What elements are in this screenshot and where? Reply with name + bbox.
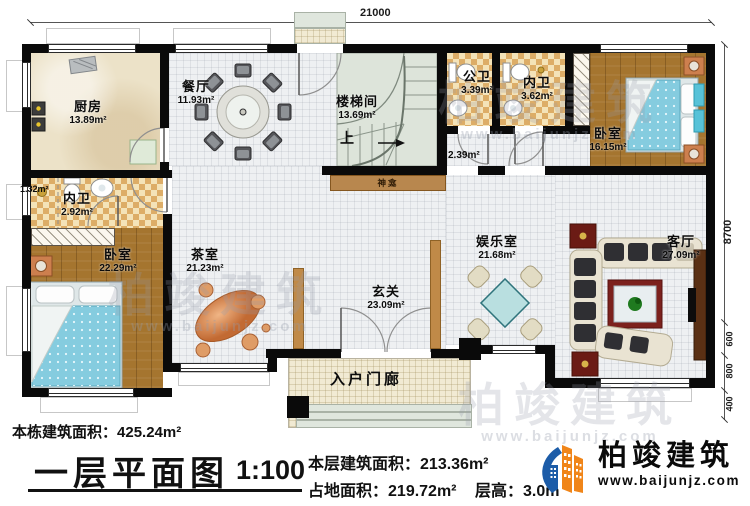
wall — [322, 166, 446, 175]
entry-steps-top-landing — [294, 28, 346, 44]
room-label-porch: 入户门廊 — [330, 368, 402, 389]
wall — [266, 349, 341, 358]
porch-step — [296, 420, 472, 428]
dimension-top-value: 21000 — [360, 7, 391, 19]
foyer-screen-left — [293, 268, 304, 349]
wall — [706, 44, 715, 388]
wall — [543, 126, 590, 134]
doors — [88, 53, 545, 352]
room-label-stairwell: 楼梯间13.69m² — [336, 95, 378, 121]
window — [492, 345, 536, 354]
dimension-seg-400: 400 — [725, 396, 735, 411]
title-underline — [28, 489, 302, 492]
area-label-shower: 1.32m² — [20, 184, 49, 194]
building-total-area: 本栋建筑面积：425.24m² — [12, 421, 181, 442]
wall — [492, 44, 500, 134]
room-label-kitchen: 厨房13.89m² — [69, 100, 106, 126]
room-label-bedroom-right: 卧室16.15m² — [589, 127, 626, 153]
dimension-seg-800: 800 — [725, 363, 735, 378]
room-label-ensuite-top: 内卫3.62m² — [521, 76, 553, 102]
porch-column — [459, 338, 481, 360]
wall — [160, 44, 169, 128]
ground-area-line: 占地面积：219.72m² 层高：3.0m — [308, 477, 559, 501]
wall — [490, 126, 515, 134]
wall — [545, 166, 706, 175]
drawing-scale: 1:100 — [236, 455, 305, 486]
brand-name: 柏竣建筑 — [598, 441, 740, 473]
room-label-bedroom-left: 卧室22.29m² — [99, 248, 136, 274]
wall — [437, 44, 447, 175]
door-gap — [297, 44, 343, 53]
room-label-rec-room: 娱乐室21.68m² — [476, 235, 518, 261]
bed-left — [30, 256, 122, 388]
tea-room-furniture — [187, 280, 270, 357]
wall — [22, 170, 172, 178]
window — [48, 388, 134, 397]
brand-logo-icon — [536, 441, 590, 499]
window — [22, 288, 31, 352]
floorplan-page: { "plan": { "dims": { "top": "21000", "r… — [0, 0, 750, 506]
porch-step — [296, 412, 472, 420]
room-label-ensuite-left: 内卫2.92m² — [61, 192, 93, 218]
foyer-screen-right — [430, 240, 441, 349]
wall — [565, 44, 573, 134]
window — [22, 62, 31, 108]
room-label-living-room: 客厅27.09m² — [662, 235, 699, 261]
shrine-shelf: 神龛 — [330, 175, 446, 191]
area-label-corridor: 2.39m² — [448, 150, 480, 161]
window — [175, 44, 268, 53]
brand-block: 柏竣建筑 www.baijunjz.com — [536, 441, 740, 499]
floor-area-line: 本层建筑面积：213.36m² — [308, 450, 489, 474]
wall — [437, 126, 458, 134]
wall — [163, 170, 172, 176]
entry-steps-top — [294, 12, 346, 28]
room-label-tea-room: 茶室21.23m² — [186, 248, 223, 274]
porch-column — [287, 396, 309, 418]
room-label-foyer: 玄关23.09m² — [367, 285, 404, 311]
dimension-seg-600: 600 — [725, 331, 735, 346]
page-title: 一层平面图 — [34, 446, 229, 495]
window — [600, 378, 690, 388]
window — [48, 44, 136, 53]
brand-url: www.baijunjz.com — [598, 473, 740, 488]
window — [600, 44, 688, 53]
bed-right — [626, 57, 704, 163]
wall — [163, 214, 172, 372]
room-label-public-bath: 公卫3.39m² — [461, 70, 493, 96]
window — [180, 363, 268, 372]
room-label-dining: 餐厅11.93m² — [178, 80, 215, 106]
rec-room-table-set — [466, 264, 545, 343]
dimension-right-value: 8700 — [722, 220, 734, 244]
shrine-label: 神龛 — [377, 177, 398, 189]
wall — [478, 166, 505, 175]
stair-up-label: 上 — [340, 128, 354, 148]
porch-step — [296, 404, 472, 412]
